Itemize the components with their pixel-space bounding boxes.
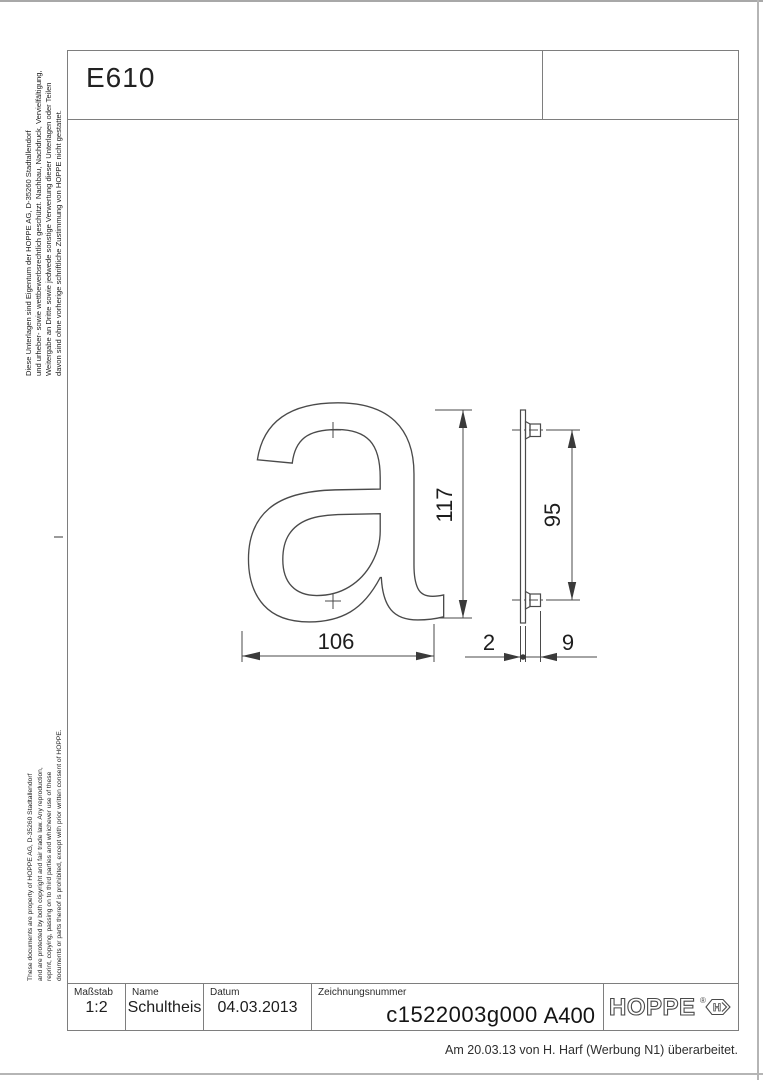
technical-drawing: a 106 117	[0, 0, 763, 1080]
name-value: Schultheis	[126, 999, 203, 1017]
dim-depth-value: 9	[562, 630, 574, 655]
title-block-date-cell: Datum 04.03.2013	[204, 984, 312, 1030]
hoppe-logo-text: HOPPE	[609, 994, 696, 1021]
title-block-number-cell: Zeichnungsnummer c1522003g000 A400	[312, 984, 604, 1030]
scale-value: 1:2	[68, 999, 125, 1017]
side-view-plate	[521, 410, 526, 623]
revision-note: Am 20.03.13 von H. Harf (Werbung N1) übe…	[445, 1043, 738, 1057]
dim-stud-spacing: 95	[540, 430, 580, 600]
dim-height-value: 117	[432, 487, 457, 522]
hoppe-logo: HOPPE ® H	[609, 991, 733, 1023]
title-block-name-cell: Name Schultheis	[126, 984, 204, 1030]
dim-thickness-value: 2	[483, 630, 495, 655]
hoppe-logo-registered: ®	[700, 996, 706, 1005]
dim-width-value: 106	[318, 629, 355, 654]
date-value: 04.03.2013	[204, 999, 311, 1017]
dim-thickness-depth: 2 9	[465, 611, 597, 662]
date-label: Datum	[204, 984, 311, 998]
format-code: A400	[544, 1003, 595, 1029]
drawing-number-label: Zeichnungsnummer	[312, 984, 603, 998]
title-block-logo-cell: HOPPE ® H	[604, 984, 738, 1030]
title-block: Maßstab 1:2 Name Schultheis Datum 04.03.…	[67, 983, 739, 1031]
hoppe-logo-mark-letter: H	[713, 1002, 721, 1014]
hoppe-logo-hexagon-icon: H	[706, 1000, 730, 1015]
title-block-scale-cell: Maßstab 1:2	[68, 984, 126, 1030]
dim-stud-spacing-value: 95	[540, 503, 565, 527]
name-label: Name	[126, 984, 203, 998]
scale-label: Maßstab	[68, 984, 125, 998]
